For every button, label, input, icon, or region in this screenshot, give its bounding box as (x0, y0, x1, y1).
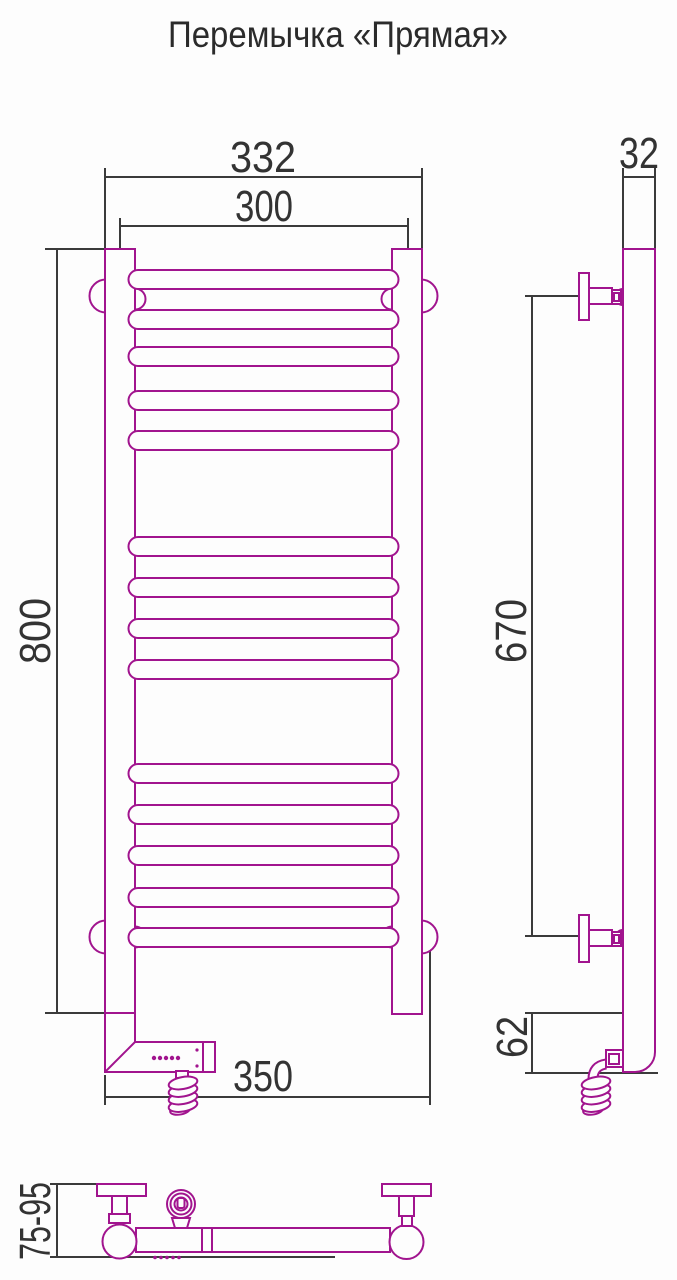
rail (129, 764, 399, 783)
right-post-section (390, 1225, 424, 1259)
power-cable-coil-side (581, 1050, 623, 1116)
top-bracket-right (382, 1184, 431, 1226)
rail (129, 347, 399, 366)
dim-text-62: 62 (488, 1016, 537, 1058)
thermostat-knob (167, 1190, 195, 1228)
side-view (579, 249, 655, 1116)
dim-text-32: 32 (619, 129, 659, 178)
rail (129, 310, 399, 329)
side-bracket-top (579, 273, 621, 320)
dimension-depth: 32 (619, 129, 659, 248)
dim-text-800: 800 (11, 598, 60, 664)
crossbar (136, 1228, 390, 1252)
drawing-title: Перемычка «Прямая» (168, 14, 508, 55)
dimension-height: 800 (11, 249, 110, 1013)
dimension-mount-span: 670 (487, 296, 622, 936)
side-post (623, 249, 655, 1072)
rail (129, 270, 399, 289)
dimension-rail-span: 300 (120, 182, 408, 248)
front-view (90, 249, 438, 1116)
dim-text-300: 300 (235, 182, 293, 231)
dim-text-332: 332 (230, 133, 296, 182)
rail (129, 888, 399, 907)
dimension-bottom-width: 350 (105, 947, 430, 1105)
rail (129, 928, 399, 947)
side-bracket-bottom (579, 915, 621, 962)
rails (129, 270, 399, 947)
dim-text-75-95: 75-95 (11, 1182, 60, 1260)
left-post-section (103, 1225, 137, 1259)
rail (129, 578, 399, 597)
rail (129, 619, 399, 638)
technical-drawing: Перемычка «Прямая» 332 300 800 350 32 67… (0, 0, 677, 1280)
rail (129, 846, 399, 865)
rail (129, 660, 399, 679)
rail (129, 431, 399, 450)
rail (129, 805, 399, 824)
dim-text-670: 670 (487, 599, 536, 663)
rail (129, 537, 399, 556)
top-view (97, 1184, 431, 1259)
rail (129, 391, 399, 410)
top-bracket-left (97, 1184, 146, 1223)
power-cable-coil-front (168, 1071, 199, 1116)
dim-text-350: 350 (233, 1052, 293, 1101)
drawing-svg: Перемычка «Прямая» 332 300 800 350 32 67… (0, 0, 677, 1280)
